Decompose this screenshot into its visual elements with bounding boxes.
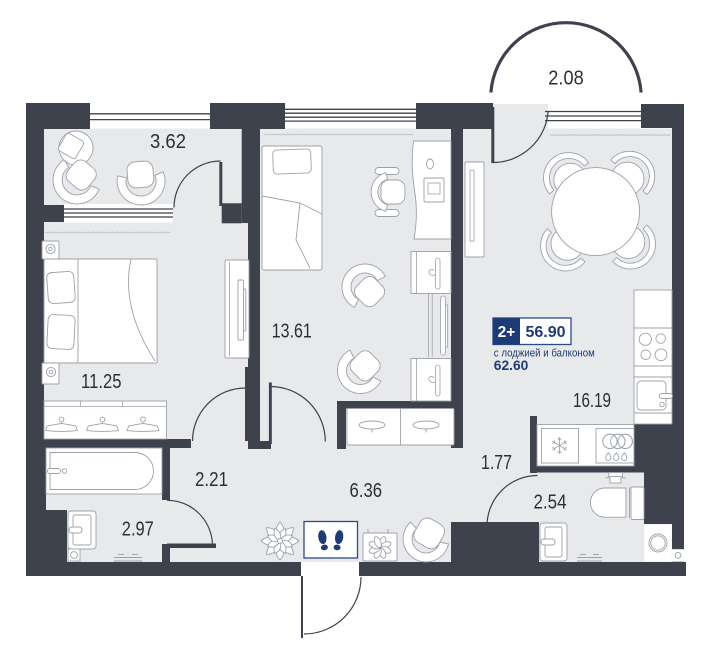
svg-text:2+: 2+ bbox=[498, 324, 516, 341]
svg-text:1.77: 1.77 bbox=[481, 451, 512, 474]
svg-text:56.90: 56.90 bbox=[525, 324, 565, 341]
svg-text:3.62: 3.62 bbox=[150, 130, 186, 153]
svg-text:62.60: 62.60 bbox=[494, 358, 529, 373]
svg-text:6.36: 6.36 bbox=[350, 479, 383, 502]
svg-text:2.21: 2.21 bbox=[195, 468, 228, 491]
svg-text:16.19: 16.19 bbox=[573, 389, 611, 412]
svg-text:2.54: 2.54 bbox=[534, 490, 567, 513]
svg-text:2.08: 2.08 bbox=[548, 67, 583, 90]
svg-text:13.61: 13.61 bbox=[272, 320, 312, 343]
svg-text:11.25: 11.25 bbox=[81, 370, 122, 393]
svg-text:2.97: 2.97 bbox=[122, 517, 154, 540]
